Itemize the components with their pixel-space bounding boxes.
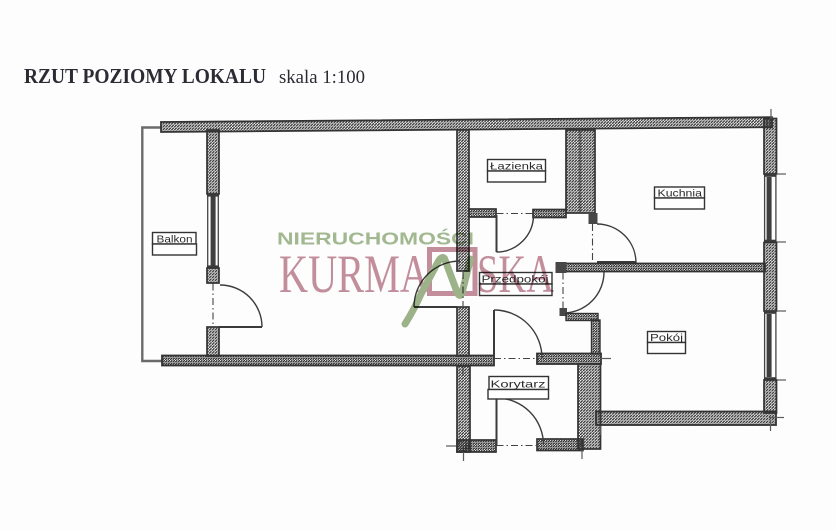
svg-text:RZUT POZIOMY LOKALU: RZUT POZIOMY LOKALU <box>24 64 266 88</box>
svg-text:Balkon: Balkon <box>157 234 193 246</box>
svg-text:Łazienka: Łazienka <box>490 161 543 173</box>
svg-text:Korytarz: Korytarz <box>491 379 546 391</box>
svg-text:Kuchnia: Kuchnia <box>658 188 703 200</box>
svg-text:SKA: SKA <box>477 244 554 304</box>
svg-text:KURMA: KURMA <box>279 244 429 304</box>
svg-text:skala 1:100: skala 1:100 <box>279 67 365 88</box>
svg-text:Pokój: Pokój <box>650 332 683 344</box>
